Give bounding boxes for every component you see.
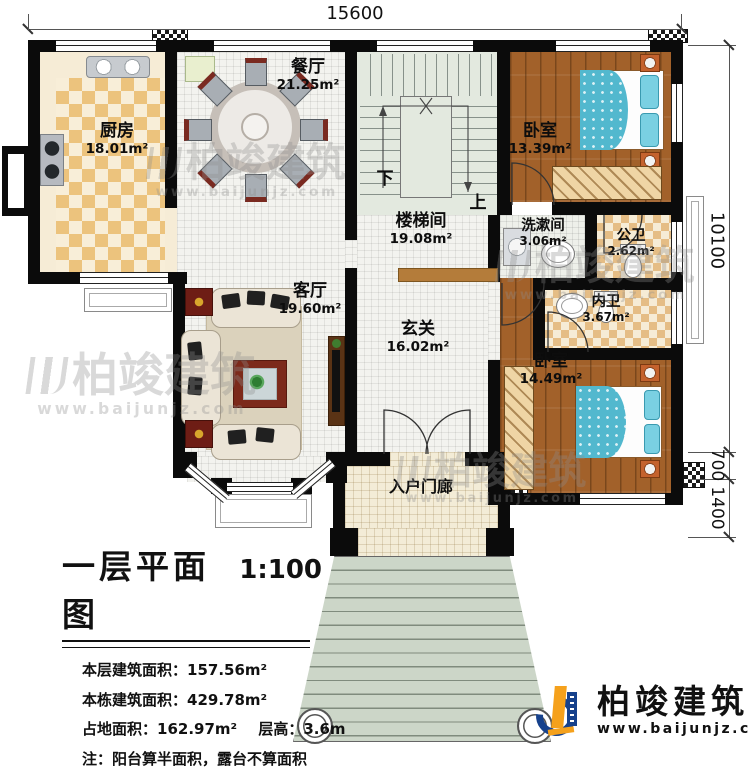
kitchen-window-sill	[84, 288, 172, 312]
room-label-living: 客厅19.60m²	[279, 282, 342, 317]
nightstand	[640, 54, 660, 72]
stair-landing	[400, 96, 452, 198]
dim-right-low: 1400	[707, 481, 727, 535]
bedroom-top-bottom-wall-a	[497, 202, 512, 215]
sofa-cushion	[247, 291, 266, 306]
bedroom-bottom-window	[580, 493, 665, 505]
bay-window-sill	[215, 494, 312, 528]
title-underline	[62, 640, 310, 648]
stair-exit-floor	[345, 240, 357, 268]
bed-bottom-pillow	[644, 424, 660, 454]
dining-table-center	[241, 113, 269, 141]
dining-chair	[184, 119, 212, 141]
sofa-cushion	[187, 376, 203, 395]
logo-brand-text: 柏竣建筑	[597, 685, 750, 718]
land-area-line: 占地面积：162.97m² 层高：3.6m	[82, 718, 322, 739]
building-area-line: 本栋建筑面积：429.78m²	[82, 689, 322, 710]
corner-cabinet	[185, 288, 213, 316]
stair-label-up: 上	[470, 194, 487, 214]
bedroom-top-window	[556, 40, 650, 52]
stair-flight-top	[360, 54, 497, 96]
ac-platform-hatch	[683, 462, 705, 488]
nightstand	[640, 364, 660, 382]
living-foyer-wall	[345, 268, 357, 452]
dim-line-right	[729, 45, 730, 537]
sofa-cushion	[221, 293, 241, 309]
wardrobe-top	[552, 166, 662, 200]
foyer-gap-floor	[488, 282, 500, 360]
bed-top-pillow	[640, 75, 659, 109]
watermark-building-icon	[25, 357, 68, 394]
room-label-bedroom-bottom: 卧室14.49m²	[520, 352, 583, 387]
bed-top-pillow	[640, 113, 659, 147]
sofa-cushion	[255, 427, 274, 443]
dining-chair	[245, 174, 267, 202]
kitchen-top-window	[56, 40, 156, 52]
sofa-cushion	[227, 429, 246, 445]
kitchen-doorway-floor	[165, 208, 177, 272]
room-label-porch: 入户门廊	[389, 478, 453, 496]
logo-icon	[536, 682, 588, 740]
dim-top-value: 15600	[300, 3, 410, 24]
kitchen-stove	[40, 134, 64, 186]
room-label-foyer: 玄关16.02m²	[387, 320, 450, 355]
corner-cabinet	[185, 420, 213, 448]
stair-label-down: 下	[377, 170, 394, 190]
room-label-bedroom-top: 卧室13.39m²	[509, 122, 572, 157]
sofa-cushion	[187, 341, 203, 360]
dining-top-window	[214, 40, 330, 52]
bay-window-bottom	[227, 482, 293, 492]
porch-door-floor	[390, 452, 465, 466]
nightstand	[640, 460, 660, 478]
dining-chair	[300, 119, 328, 141]
public-bath-window	[671, 222, 683, 272]
note-line: 注：阳台算半面积，露台不算面积	[82, 748, 322, 769]
stair-flight-right	[452, 96, 497, 198]
dim-ext	[28, 14, 29, 30]
flue-box-inner	[8, 154, 24, 208]
room-label-public-bath: 公卫2.62m²	[607, 228, 654, 258]
company-logo: 柏竣建筑 www.baijunjz.com	[536, 682, 750, 740]
porch-floor	[345, 466, 498, 530]
plan-scale: 1:100	[239, 555, 322, 585]
kitchen-dining-wall	[165, 52, 177, 208]
floor-area-line: 本层建筑面积：157.56m²	[82, 659, 322, 680]
bed-bottom-duvet	[576, 386, 626, 458]
floor-plan-page: { "dimensions": { "top": "15600", "right…	[0, 0, 750, 752]
room-label-washroom: 洗漱间3.06m²	[519, 218, 566, 248]
dining-chair	[245, 58, 267, 86]
bed-top-duvet	[580, 70, 628, 150]
logo-tower-blue	[567, 692, 577, 726]
kitchen-tile-floor	[56, 78, 165, 272]
bed-bottom-pillow	[644, 390, 660, 420]
logo-url-text: www.baijunjz.com	[597, 721, 750, 737]
plan-title: 一层平面图	[62, 540, 225, 636]
kitchen-sink	[86, 56, 150, 78]
kitchen-bottom-window	[80, 272, 168, 284]
porch-stoop-floor	[358, 528, 486, 556]
dim-right-main: 10100	[707, 208, 728, 274]
washroom-bath-wall	[585, 215, 597, 282]
ensuite-bath-window	[671, 292, 683, 344]
foyer-beam	[398, 268, 498, 282]
right-window-sill	[686, 196, 704, 344]
entry-steps	[293, 556, 551, 742]
bath-row-wall	[533, 278, 683, 290]
dim-line-top	[28, 29, 682, 30]
dining-stair-wall	[345, 52, 357, 240]
porch-column-right	[486, 528, 514, 556]
dim-ext	[681, 14, 682, 30]
room-label-kitchen: 厨房18.01m²	[86, 122, 149, 157]
title-block: 一层平面图 1:100 本层建筑面积：157.56m² 本栋建筑面积：429.7…	[62, 540, 322, 769]
tv-plant	[332, 339, 341, 348]
stair-top-window	[377, 40, 473, 52]
hall-floor	[500, 278, 533, 360]
room-label-ensuite-bath: 内卫3.67m²	[582, 294, 629, 324]
bedroom-top-right-window	[671, 84, 683, 142]
room-label-dining: 餐厅21.25m²	[277, 58, 340, 93]
tv-screen	[332, 350, 340, 412]
bedroom-top-bottom-wall-b	[552, 202, 683, 215]
table-plant	[249, 374, 265, 390]
room-label-stairwell: 楼梯间19.08m²	[390, 212, 453, 247]
porch-column-left	[330, 528, 358, 556]
